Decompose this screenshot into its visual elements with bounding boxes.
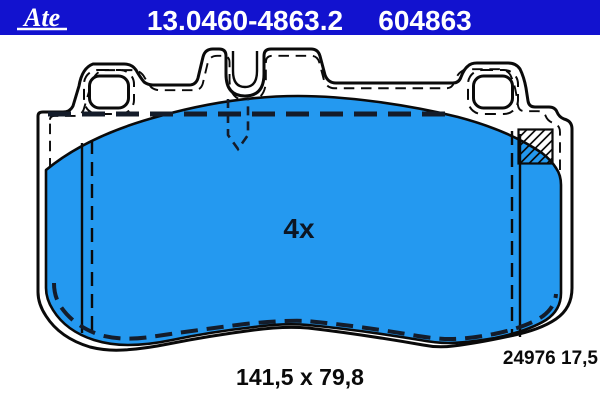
- reference-label: 24976 17,5: [503, 348, 599, 369]
- quantity-label: 4x: [283, 213, 315, 244]
- brand-logo-text: Ate: [22, 3, 60, 32]
- dimensions-label: 141,5 x 79,8: [236, 364, 364, 390]
- brake-pad-diagram: Ate 13.0460-4863.2 604863: [0, 0, 600, 400]
- part-number: 13.0460-4863.2: [147, 5, 343, 36]
- header-bar: Ate 13.0460-4863.2 604863: [0, 0, 600, 36]
- right-lug-hole: [474, 76, 513, 108]
- brake-pad-drawing: 4x: [38, 49, 572, 350]
- oe-number: 604863: [378, 5, 471, 36]
- ate-logo-icon: Ate: [17, 3, 67, 32]
- left-lug-hole: [90, 76, 129, 108]
- center-notch-inner-line: [233, 51, 257, 87]
